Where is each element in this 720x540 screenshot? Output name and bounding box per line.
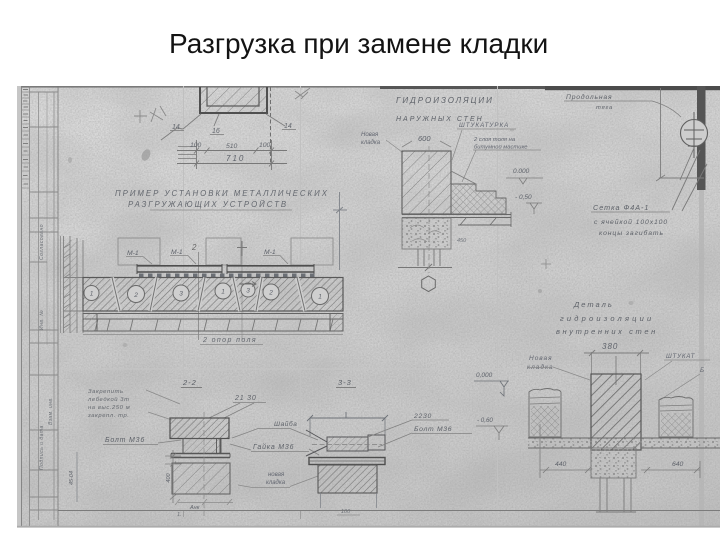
svg-text:Инв. №: Инв. № (39, 310, 45, 330)
svg-text:Болт М36: Болт М36 (414, 426, 452, 433)
svg-text:2 слоя толя на: 2 слоя толя на (473, 137, 516, 143)
svg-text:16: 16 (212, 128, 220, 135)
svg-text:гидроизоляции: гидроизоляции (560, 314, 654, 323)
svg-text:- 0,50: - 0,50 (515, 194, 532, 201)
svg-text:Деталь: Деталь (573, 300, 614, 309)
svg-text:кладка: кладка (527, 363, 554, 371)
svg-text:лебедкой 3т: лебедкой 3т (87, 396, 130, 403)
svg-text:концы загибать: концы загибать (599, 229, 664, 237)
svg-text:3: 3 (179, 291, 183, 298)
svg-text:2 опор поля: 2 опор поля (202, 337, 257, 344)
svg-text:440: 440 (555, 461, 567, 468)
svg-text:ШТУКАТ: ШТУКАТ (666, 353, 696, 360)
svg-text:2230: 2230 (413, 413, 432, 420)
svg-text:510: 510 (226, 143, 238, 150)
svg-text:45-04: 45-04 (69, 471, 75, 485)
svg-text:кладка: кладка (361, 140, 381, 146)
svg-text:- 0,60: - 0,60 (477, 417, 493, 424)
svg-text:Новая: Новая (529, 355, 553, 362)
svg-text:Шайба: Шайба (274, 420, 297, 428)
svg-text:Закрепить: Закрепить (88, 389, 124, 395)
svg-text:Болт М36: Болт М36 (105, 437, 145, 444)
svg-text:внутренних стен: внутренних стен (556, 327, 658, 336)
svg-text:3: 3 (246, 288, 250, 295)
svg-text:450: 450 (457, 238, 467, 244)
svg-text:М-1: М-1 (264, 249, 276, 256)
svg-text:РАЗГРУЖАЮЩИХ УСТРОЙСТВ: РАЗГРУЖАЮЩИХ УСТРОЙСТВ (128, 200, 288, 209)
svg-text:100: 100 (259, 142, 271, 149)
svg-text:0,000: 0,000 (476, 372, 493, 379)
svg-text:2-2: 2-2 (182, 378, 197, 387)
svg-text:1.: 1. (177, 512, 182, 518)
svg-text:400: 400 (166, 472, 172, 482)
svg-text:21 30: 21 30 (234, 395, 257, 402)
svg-text:2: 2 (191, 243, 197, 252)
svg-text:М-1: М-1 (171, 249, 183, 256)
svg-text:Согласовано: Согласовано (39, 224, 45, 260)
svg-text:2: 2 (268, 290, 273, 297)
svg-text:битумной мастике: битумной мастике (474, 144, 528, 151)
svg-text:Гайка М36: Гайка М36 (253, 443, 294, 451)
svg-text:на выс.250 м: на выс.250 м (88, 405, 130, 411)
svg-text:100: 100 (190, 142, 202, 149)
svg-text:14: 14 (284, 123, 292, 130)
svg-text:с ячейкой 100х100: с ячейкой 100х100 (594, 218, 668, 226)
svg-text:3-3: 3-3 (338, 378, 352, 387)
svg-text:ШТУКАТУРКА: ШТУКАТУРКА (459, 122, 509, 129)
svg-text:Продольная: Продольная (566, 93, 612, 101)
svg-text:640: 640 (672, 461, 684, 468)
svg-text:ПРИМЕР УСТАНОВКИ МЕТАЛЛИЧЕСК: ПРИМЕР УСТАНОВКИ МЕТАЛЛИЧЕСКИХ (115, 189, 329, 198)
svg-text:1: 1 (90, 291, 94, 298)
svg-text:тяга: тяга (596, 105, 613, 111)
svg-text:Новая: Новая (361, 132, 379, 138)
svg-text:2: 2 (133, 292, 138, 299)
svg-text:кладка: кладка (266, 480, 286, 486)
svg-text:закрепл. тр.: закрепл. тр. (87, 413, 130, 419)
svg-text:Сетка Ф4А-1: Сетка Ф4А-1 (593, 203, 649, 212)
svg-text:М-1: М-1 (127, 250, 139, 257)
svg-text:14: 14 (172, 124, 180, 131)
svg-text:1: 1 (318, 294, 322, 301)
svg-text:380: 380 (602, 342, 618, 351)
svg-text:600: 600 (418, 134, 431, 143)
svg-text:0.000: 0.000 (513, 168, 530, 175)
svg-text:100: 100 (341, 509, 351, 515)
svg-text:новая: новая (268, 472, 285, 478)
svg-text:1: 1 (221, 289, 225, 296)
svg-text:Подпись и дата: Подпись и дата (39, 425, 45, 470)
svg-text:Б: Б (700, 367, 705, 374)
svg-text:ГИДРОИЗОЛЯЦИИ: ГИДРОИЗОЛЯЦИИ (396, 96, 494, 105)
svg-text:710: 710 (226, 154, 245, 163)
svg-text:Взам. инв.: Взам. инв. (48, 397, 54, 425)
